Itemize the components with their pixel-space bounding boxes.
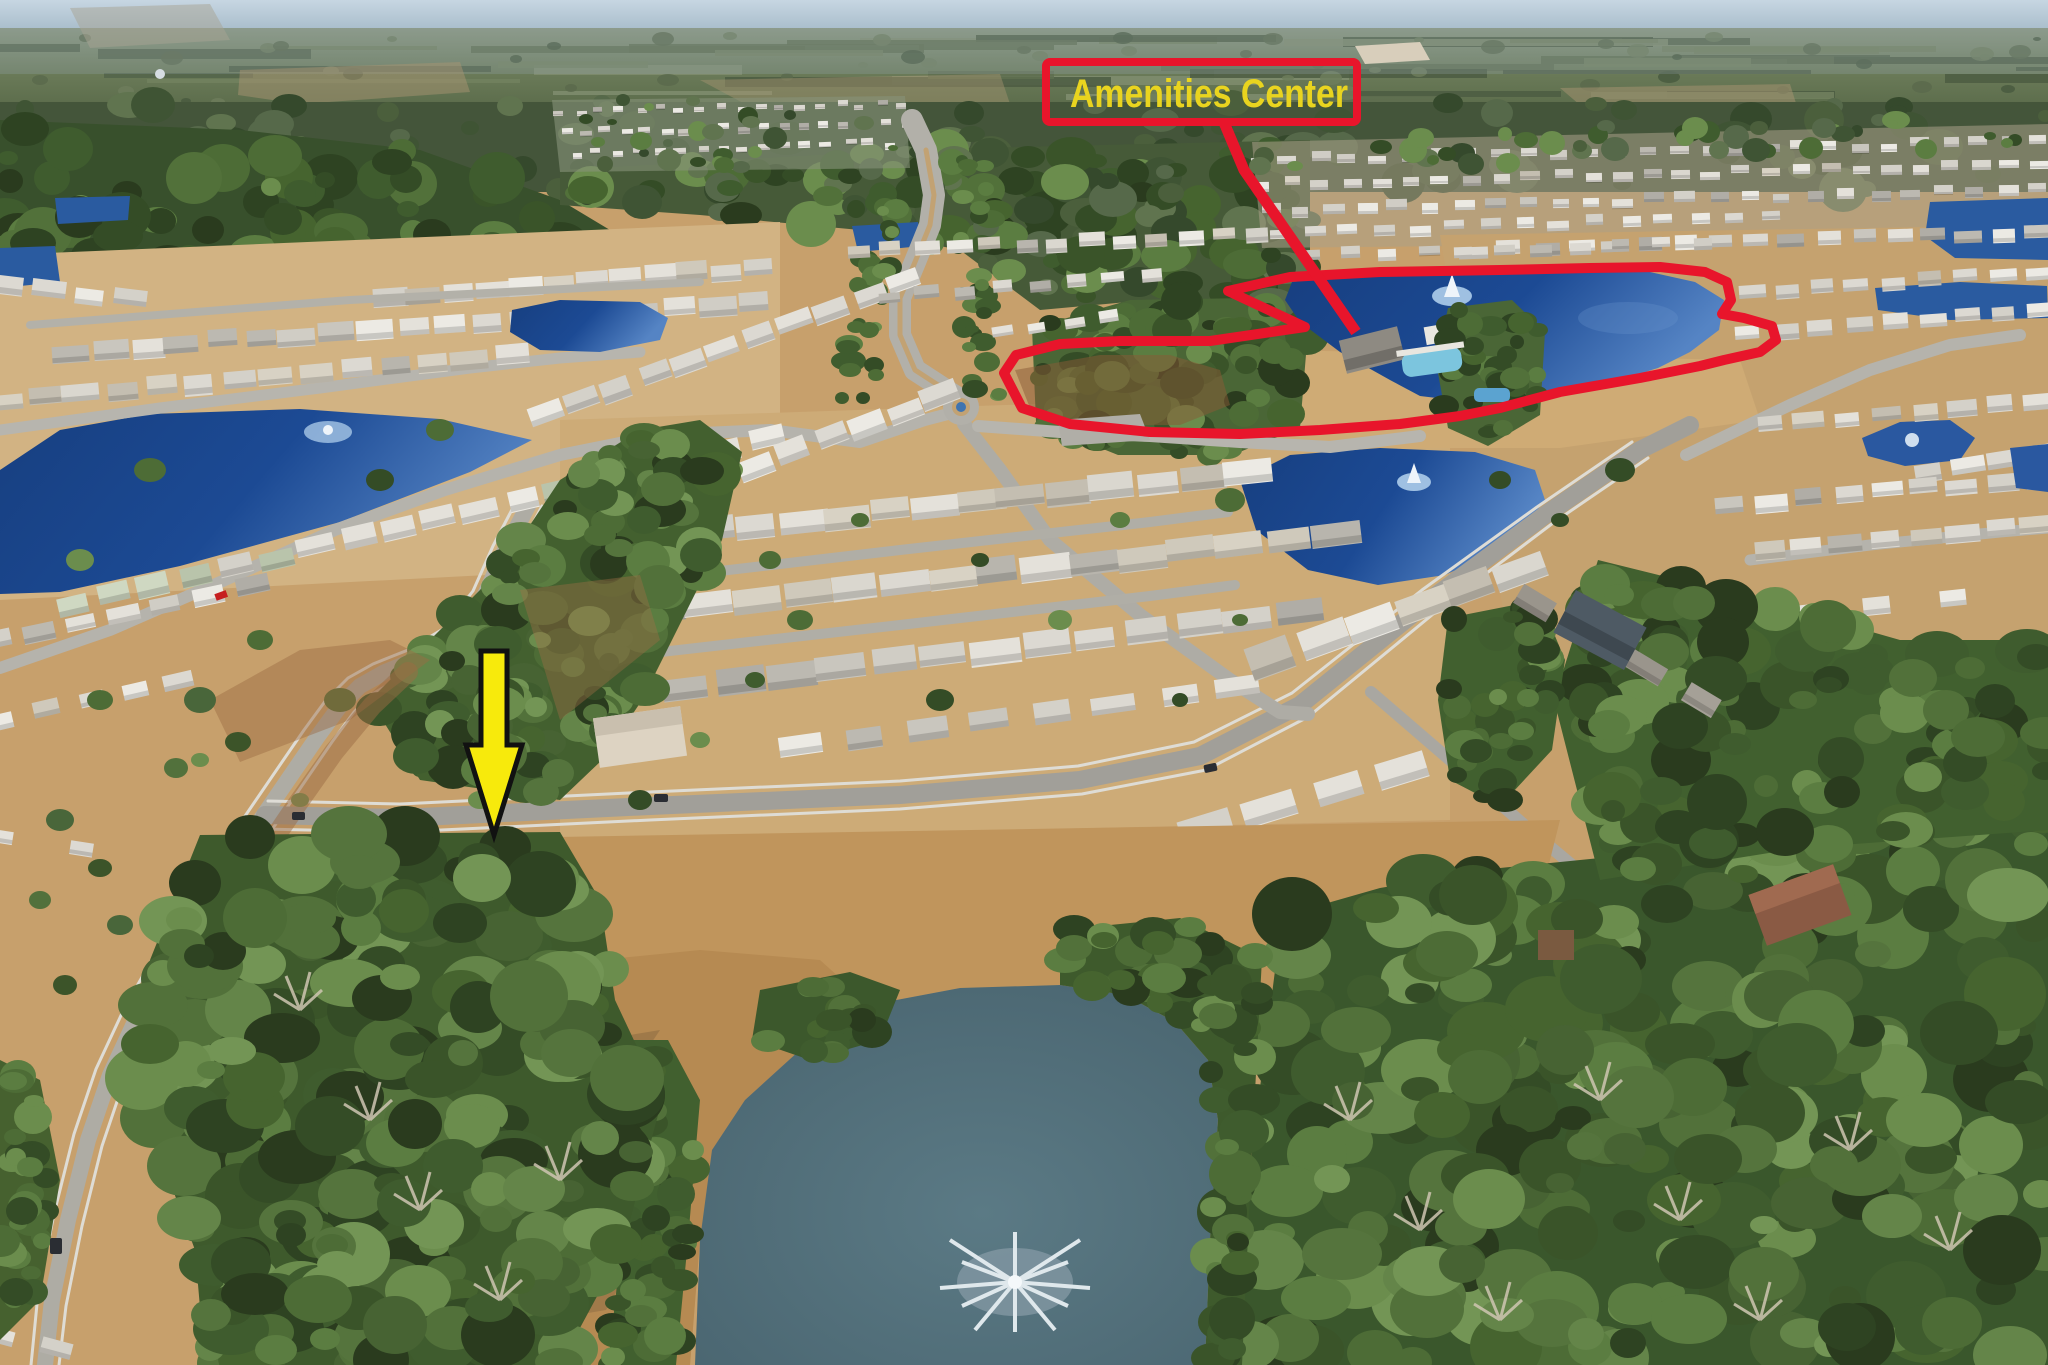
svg-text:Amenities Center: Amenities Center	[1070, 72, 1348, 116]
